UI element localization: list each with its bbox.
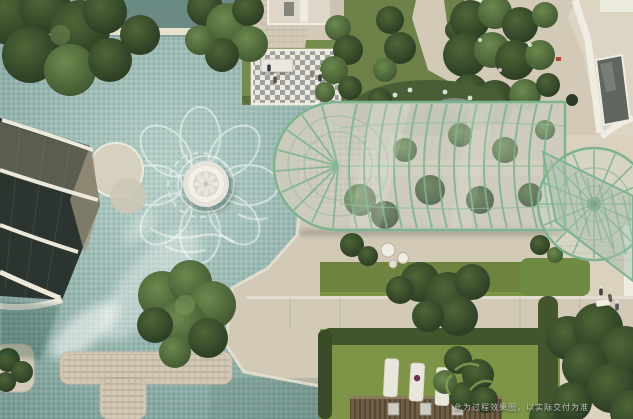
round-lounger — [381, 243, 395, 257]
person — [273, 73, 277, 83]
pergola-table — [261, 59, 293, 72]
lotus-fountain — [178, 156, 235, 213]
bright-hedge-block — [520, 258, 590, 296]
person — [267, 61, 271, 71]
person — [310, 67, 314, 77]
person — [599, 285, 603, 295]
glass-conservatory-tunnel — [274, 102, 565, 230]
person — [318, 71, 322, 81]
red-accent — [556, 57, 561, 61]
rendering-canvas: 此为过程效果图，以实际交付为准 — [0, 0, 633, 419]
courtyard-aerial-scene — [0, 0, 633, 419]
person — [615, 300, 619, 310]
